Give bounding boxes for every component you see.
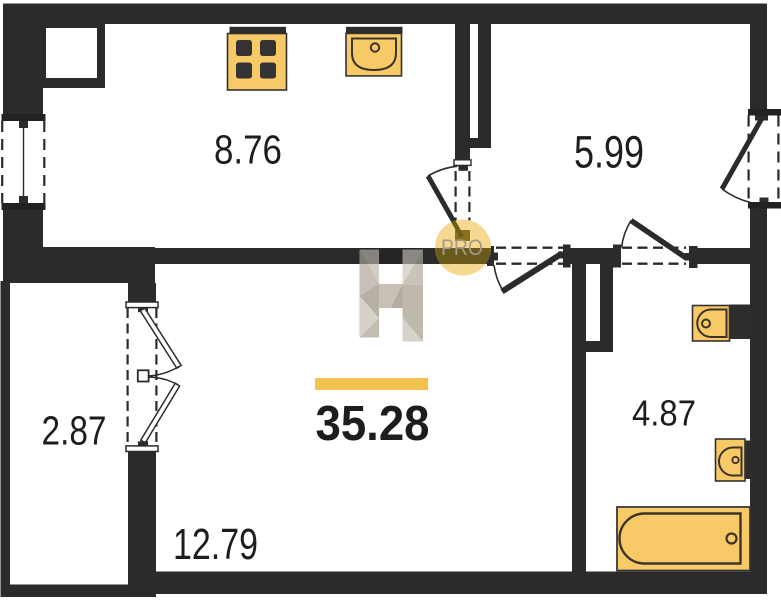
svg-text:4.87: 4.87 xyxy=(632,393,696,434)
svg-text:2.87: 2.87 xyxy=(42,408,107,454)
svg-text:8.76: 8.76 xyxy=(214,127,282,173)
svg-text:12.79: 12.79 xyxy=(173,520,258,569)
svg-text:5.99: 5.99 xyxy=(574,127,644,178)
svg-text:PRO: PRO xyxy=(441,235,483,260)
svg-text:35.28: 35.28 xyxy=(316,396,430,451)
